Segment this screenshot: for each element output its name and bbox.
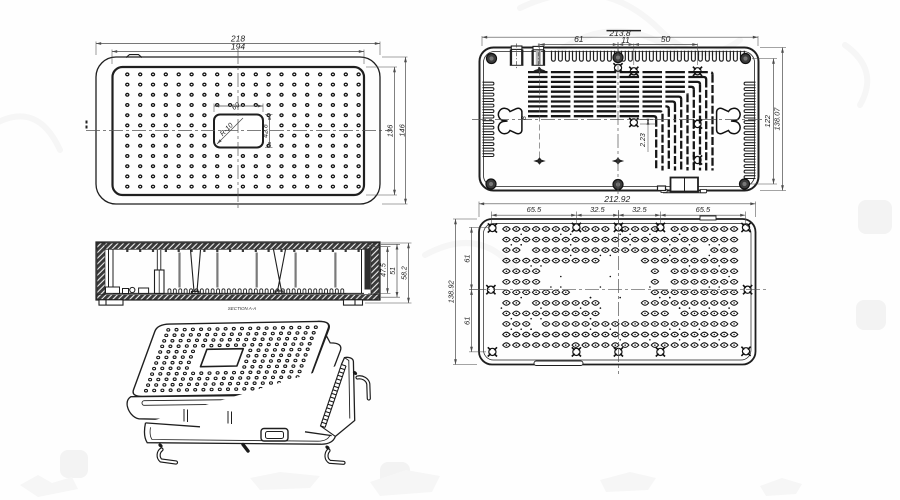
svg-text:2.23: 2.23 [640, 133, 647, 148]
svg-text:194: 194 [231, 42, 245, 52]
svg-text:SECTION A-A: SECTION A-A [228, 306, 257, 311]
svg-text:136: 136 [386, 124, 395, 137]
svg-text:138.07: 138.07 [773, 107, 782, 131]
svg-text:51: 51 [390, 267, 397, 275]
svg-text:58.2: 58.2 [402, 266, 409, 280]
svg-text:65.5: 65.5 [696, 205, 711, 214]
svg-text:11: 11 [621, 36, 629, 45]
svg-text:61: 61 [463, 317, 472, 325]
svg-text:47.5: 47.5 [381, 263, 388, 277]
svg-text:8: 8 [521, 116, 528, 120]
svg-text:32.5: 32.5 [590, 205, 605, 214]
svg-text:146: 146 [398, 123, 407, 136]
svg-text:138.92: 138.92 [447, 280, 456, 304]
svg-text:122: 122 [763, 114, 772, 127]
svg-text:50: 50 [661, 34, 671, 44]
svg-text:32.5: 32.5 [632, 205, 647, 214]
svg-text:42.8: 42.8 [263, 124, 270, 138]
svg-text:65.5: 65.5 [527, 205, 542, 214]
svg-text:212.92: 212.92 [603, 194, 630, 204]
svg-text:61: 61 [463, 254, 472, 262]
svg-text:61: 61 [574, 34, 584, 44]
